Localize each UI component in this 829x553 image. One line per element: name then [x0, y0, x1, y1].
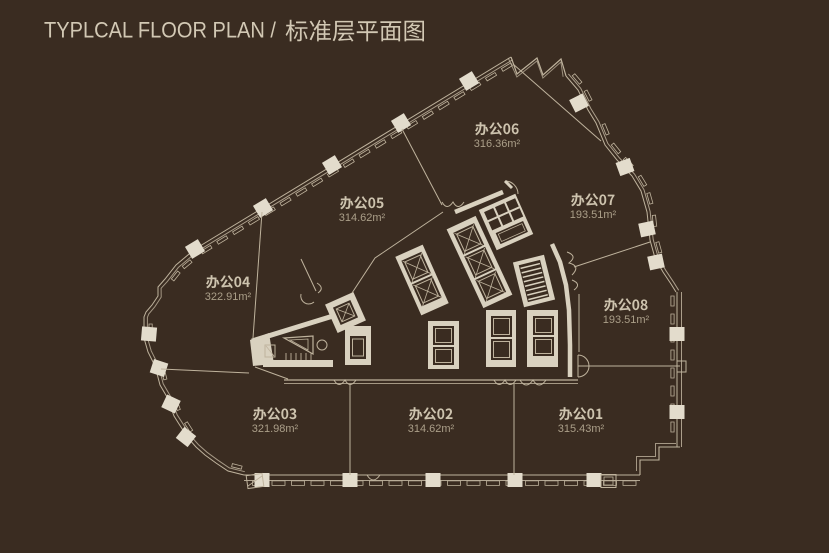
svg-text:314.62m²: 314.62m²: [408, 423, 455, 435]
svg-text:193.51m²: 193.51m²: [603, 314, 650, 326]
svg-text:321.98m²: 321.98m²: [252, 423, 299, 435]
svg-text:315.43m²: 315.43m²: [558, 423, 605, 435]
svg-text:316.36m²: 316.36m²: [474, 138, 521, 150]
svg-text:322.91m²: 322.91m²: [205, 291, 252, 303]
svg-text:314.62m²: 314.62m²: [339, 212, 386, 224]
svg-text:TYPLCAL FLOOR PLAN /: TYPLCAL FLOOR PLAN /: [44, 18, 277, 43]
svg-text:193.51m²: 193.51m²: [570, 209, 617, 221]
